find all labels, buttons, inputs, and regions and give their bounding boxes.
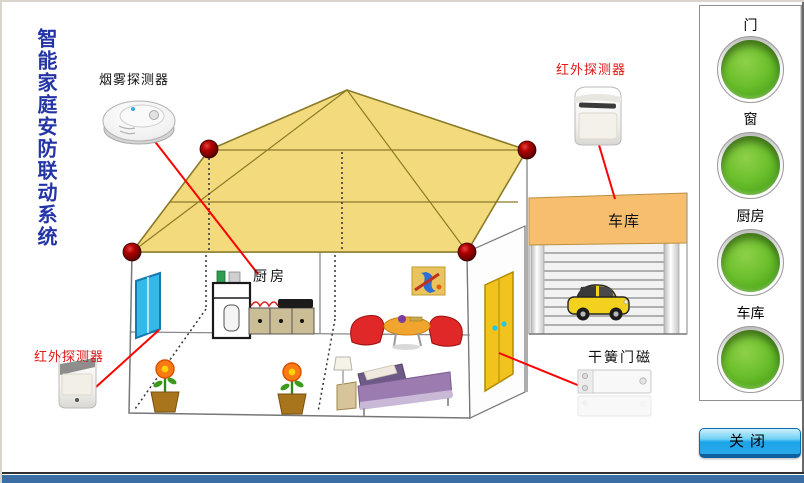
indicator-label-garage: 车库: [700, 303, 801, 323]
pir-sensor-icon-top: [575, 87, 621, 145]
smoke-detector-icon: [103, 101, 175, 144]
indicator-label-window: 窗: [700, 109, 801, 129]
indicator-label-door: 门: [700, 15, 801, 35]
indicator-led-garage[interactable]: [717, 326, 784, 393]
window-icon: [136, 273, 160, 338]
status-panel: 门 窗 厨房 车库: [699, 5, 802, 401]
indicator-led-kitchen[interactable]: [717, 229, 784, 296]
infrared-detector-label-top: 红外探测器: [556, 59, 626, 78]
sofa-set: [351, 315, 463, 350]
reed-magnet-icon: [578, 370, 651, 416]
app-window: 智能家庭安防联动系统: [0, 0, 804, 483]
footer-strip: [2, 475, 804, 483]
reed-switch-label: 干簧门磁: [588, 347, 652, 367]
door-icon: [485, 272, 513, 391]
footer-divider: [2, 472, 804, 474]
house-roof: [132, 90, 527, 252]
garage-label: 车库: [608, 210, 640, 231]
indicator-led-window[interactable]: [717, 132, 784, 199]
infrared-detector-label-bottom: 红外探测器: [34, 346, 104, 365]
indicator-label-kitchen: 厨房: [700, 206, 801, 226]
smoke-detector-label: 烟雾探测器: [99, 69, 169, 88]
wall-picture-icon: [412, 267, 445, 295]
indicator-led-door[interactable]: [717, 36, 784, 103]
close-button[interactable]: 关闭: [699, 428, 801, 458]
kitchen-label: 厨房: [253, 266, 287, 286]
